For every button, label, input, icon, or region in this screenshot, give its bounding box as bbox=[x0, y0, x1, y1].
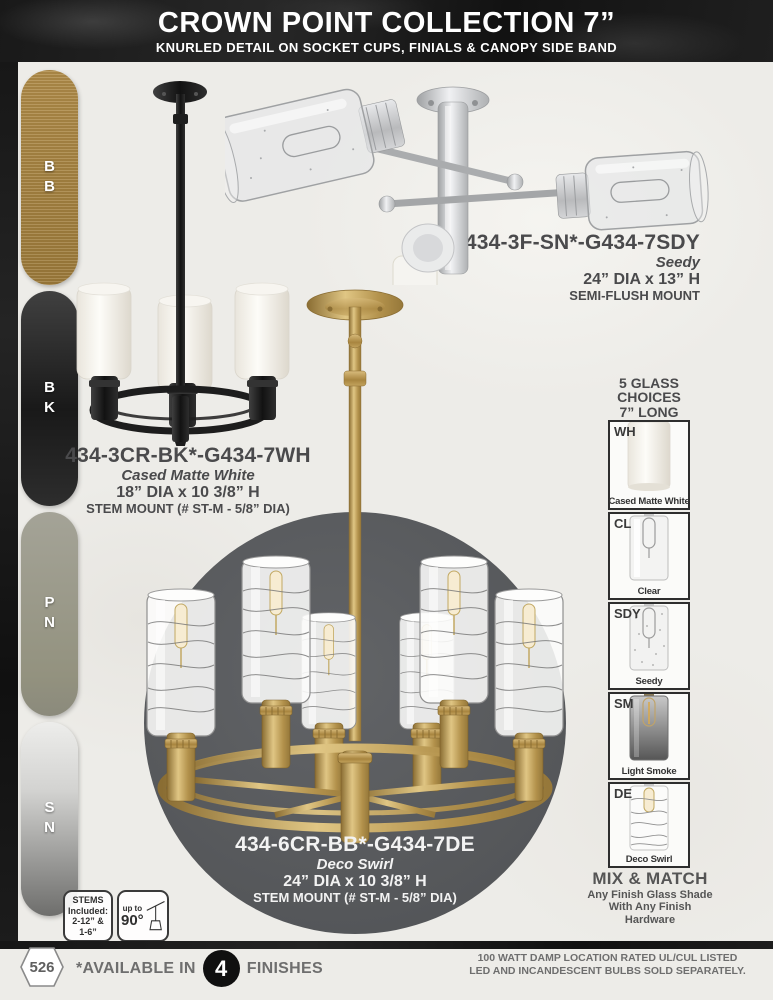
front-socket-cup bbox=[513, 733, 545, 801]
angle-value: 90° bbox=[121, 913, 144, 928]
footer-divider-bar bbox=[0, 941, 773, 949]
left-edge-strip bbox=[0, 62, 18, 948]
glass-code: WH bbox=[614, 424, 636, 439]
finish-code-bk: BK bbox=[41, 379, 58, 419]
glass-name: Light Smoke bbox=[607, 766, 691, 777]
front-glass-shade bbox=[495, 589, 563, 736]
finish-swatch-sn: SN bbox=[21, 722, 78, 916]
glass-choices-heading: 5 GLASS CHOICES 7” LONG bbox=[598, 376, 700, 419]
product-size: 24” DIA x 10 3/8” H bbox=[213, 873, 497, 891]
glass-code: CL bbox=[614, 516, 631, 531]
sloped-ceiling-badge: up to 90° bbox=[117, 890, 169, 942]
stems-included-badge: STEMS Included: 2-12” & 1-6” bbox=[63, 890, 113, 942]
right-glass-shade bbox=[555, 150, 710, 232]
finish-code-pn: PN bbox=[41, 594, 58, 634]
glass-code: SM bbox=[614, 696, 634, 711]
finish-count-badge: 4 bbox=[203, 950, 240, 987]
back-socket-cup bbox=[411, 723, 443, 791]
available-suffix: FINISHES bbox=[247, 960, 323, 978]
front-glass-shade bbox=[420, 556, 488, 703]
available-prefix: *AVAILABLE IN bbox=[76, 960, 196, 978]
front-socket-cup bbox=[165, 733, 197, 801]
finish-code-sn: SN bbox=[41, 799, 58, 839]
glass-name: Deco Swirl bbox=[607, 854, 691, 865]
left-socket-cup bbox=[89, 376, 120, 420]
page-subtitle: KNURLED DETAIL ON SOCKET CUPS, FINIALS &… bbox=[0, 40, 773, 55]
page-banner: CROWN POINT COLLECTION 7” KNURLED DETAIL… bbox=[0, 0, 773, 62]
left-glass-shade bbox=[77, 283, 131, 379]
front-socket-cup bbox=[438, 700, 470, 768]
glass-name: Cased Matte White bbox=[607, 496, 691, 507]
glass-option-sm: SM Light Smoke bbox=[608, 692, 690, 780]
rating-disclaimer: 100 WATT DAMP LOCATION RATED UL/CUL LIST… bbox=[455, 952, 760, 978]
product-glass-name: Deco Swirl bbox=[213, 857, 497, 874]
downlight-shade bbox=[393, 224, 454, 285]
page-number-badge: 526 bbox=[19, 946, 65, 988]
glass-name: Seedy bbox=[607, 676, 691, 687]
glass-name: Clear bbox=[607, 586, 691, 597]
finish-swatch-pn: PN bbox=[21, 512, 78, 716]
center-hub bbox=[341, 751, 369, 843]
front-socket-cup bbox=[260, 700, 292, 768]
mix-and-match-title: MIX & MATCH bbox=[570, 869, 730, 889]
finish-code-bb: BB bbox=[41, 158, 58, 198]
page-number: 526 bbox=[19, 946, 65, 988]
product-mount: STEM MOUNT (# ST-M - 5/8” DIA) bbox=[213, 891, 497, 906]
available-finishes-note: *AVAILABLE IN 4 FINISHES bbox=[76, 950, 323, 987]
front-glass-shade bbox=[242, 556, 310, 703]
glass-option-cl: CL Clear bbox=[608, 512, 690, 600]
catalog-page: CROWN POINT COLLECTION 7” KNURLED DETAIL… bbox=[0, 0, 773, 1000]
page-title: CROWN POINT COLLECTION 7” bbox=[0, 0, 773, 38]
product-label-brass-chandelier: 434-6CR-BB*-G434-7DE Deco Swirl 24” DIA … bbox=[213, 833, 497, 906]
mix-and-match-note: MIX & MATCH Any Finish Glass Shade With … bbox=[570, 869, 730, 926]
cross-arms bbox=[370, 147, 570, 212]
glass-option-wh: WH Cased Matte White bbox=[608, 420, 690, 510]
glass-code: DE bbox=[614, 786, 632, 801]
product-sku: 434-6CR-BB*-G434-7DE bbox=[213, 833, 497, 857]
deco-swirl-glass-thumb bbox=[626, 784, 672, 854]
glass-option-sdy: SDY Seedy bbox=[608, 602, 690, 690]
glass-option-de: DE Deco Swirl bbox=[608, 782, 690, 868]
front-glass-shade bbox=[147, 589, 215, 736]
clear-glass-thumb bbox=[626, 514, 672, 584]
glass-code: SDY bbox=[614, 606, 641, 621]
sloped-ceiling-icon bbox=[146, 895, 165, 937]
